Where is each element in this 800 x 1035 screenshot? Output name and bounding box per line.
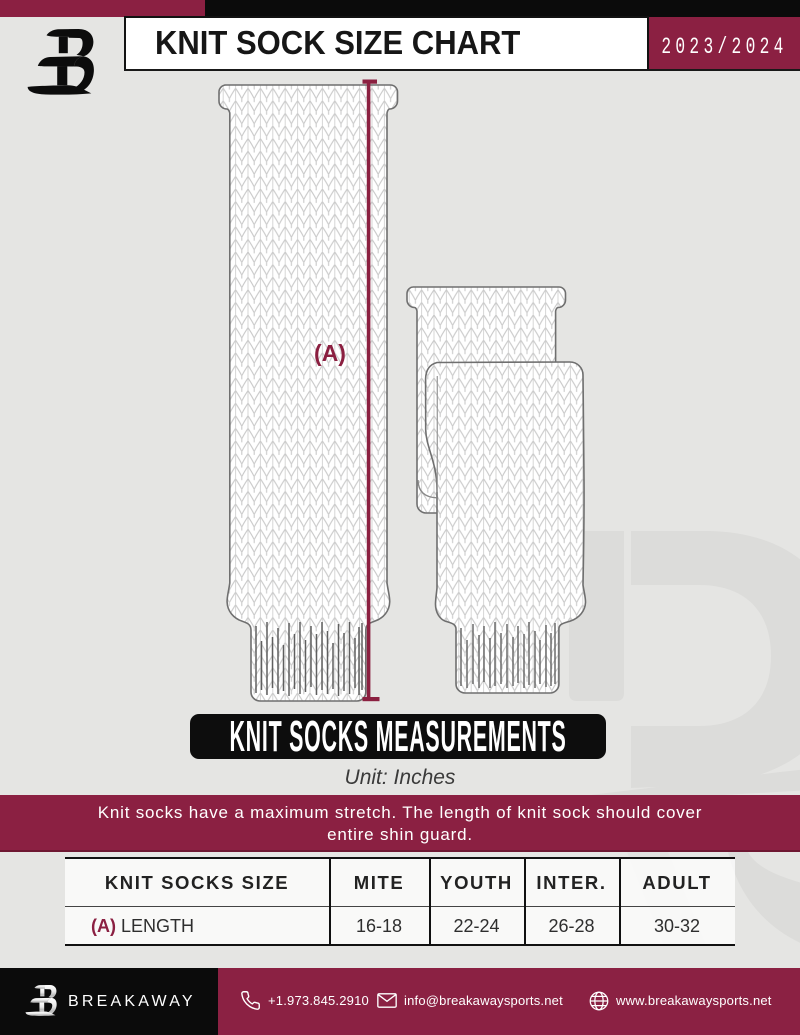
svg-text:(A): (A) [314,340,346,366]
